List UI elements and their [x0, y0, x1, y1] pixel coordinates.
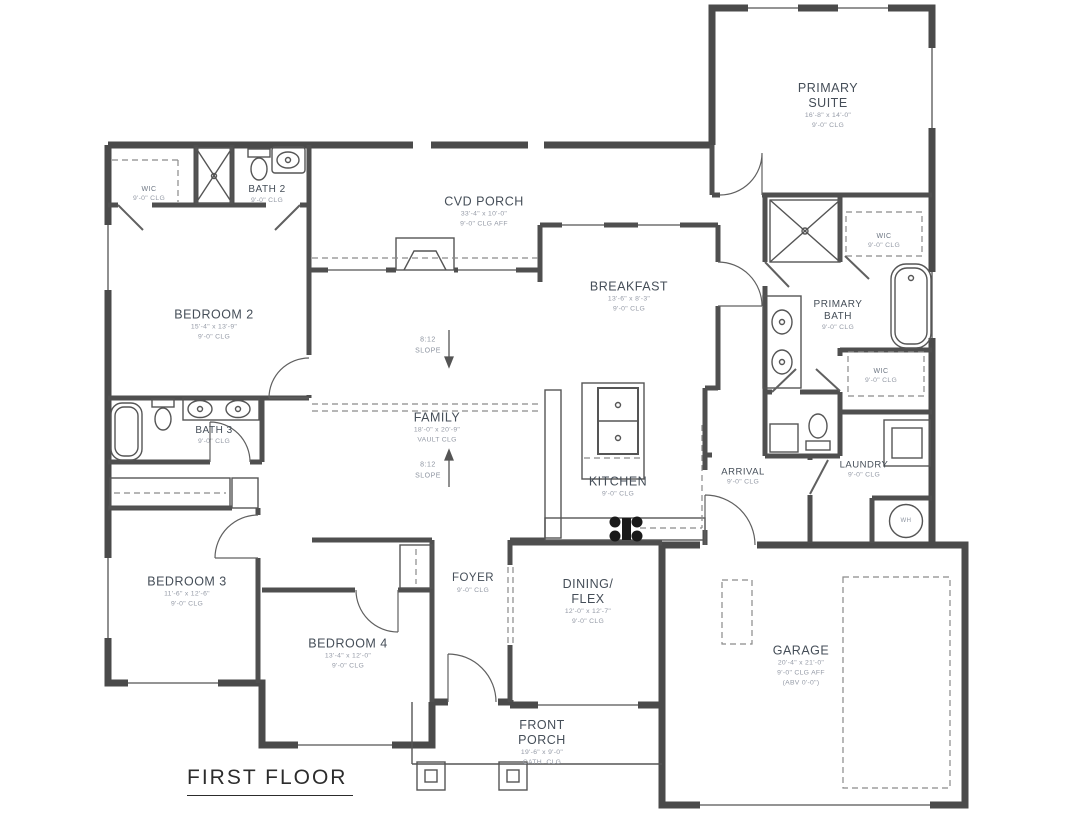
bedroom4-door: [356, 590, 398, 632]
room-label-family: FAMILY 18'-0" x 20'-9" VAULT CLG: [414, 411, 461, 446]
room-name: BEDROOM 4: [308, 637, 388, 652]
room-clg: 9'-0" CLG: [589, 490, 647, 500]
room-label-wic-bedroom2: WIC 9'-0" CLG: [133, 186, 165, 204]
slope-word: SLOPE: [415, 347, 441, 354]
room-name: KITCHEN: [589, 475, 647, 490]
room-clg: 9'-0" CLG AFF: [444, 220, 524, 230]
bath2-door: [275, 205, 300, 230]
tub-primary: [891, 264, 931, 348]
room-name: BREAKFAST: [590, 280, 668, 295]
room-label-bedroom2: BEDROOM 2 15'-4" x 13'-9" 9'-0" CLG: [174, 308, 254, 343]
room-dims: 13'-6" x 8'-3": [590, 295, 668, 305]
room-clg: 9'-0" CLG: [195, 437, 232, 447]
room-label-cvd-porch: CVD PORCH 33'-4" x 10'-0" 9'-0" CLG AFF: [444, 195, 524, 230]
room-clg: VAULT CLG: [414, 436, 461, 446]
dashed-lines: [112, 160, 950, 788]
toilet-primary: [806, 441, 830, 450]
room-clg: CATH. CLG: [507, 758, 577, 768]
room-note: (ABV 0'-0"): [773, 678, 830, 688]
room-name: FOYER: [452, 572, 494, 586]
room-dims: 13'-4" x 12'-0": [308, 652, 388, 662]
room-dims: 19'-6" x 9'-0": [507, 748, 577, 758]
room-name: CVD PORCH: [444, 195, 524, 210]
room-clg: 9'-0" CLG: [174, 333, 254, 343]
wic-primary1-door: [845, 256, 869, 279]
room-clg: 9'-0" CLG: [721, 478, 764, 488]
slope-ratio: 8:12: [420, 462, 436, 469]
room-label-wic-primary-2: WIC 9'-0" CLG: [865, 368, 897, 386]
room-name: BEDROOM 3: [147, 575, 227, 590]
room-dims: 33'-4" x 10'-0": [444, 210, 524, 220]
room-label-bath3: BATH 3 9'-0" CLG: [195, 425, 232, 447]
bedroom2-door: [269, 358, 309, 398]
room-name: WIC: [868, 233, 900, 241]
room-clg: 9'-0" CLG: [308, 662, 388, 672]
room-name: FRONT PORCH: [507, 718, 577, 748]
room-dims: 12'-0" x 12'-7": [556, 607, 620, 617]
room-clg: 9'-0" CLG AFF: [773, 669, 830, 679]
room-clg: 9'-0" CLG: [868, 241, 900, 251]
room-label-wic-primary-1: WIC 9'-0" CLG: [868, 233, 900, 251]
room-dims: 20'-4" x 21'-0": [773, 659, 830, 669]
room-name: PRIMARY SUITE: [786, 81, 870, 111]
water-heater-label: WH: [901, 518, 912, 524]
wic-primary2-door: [816, 369, 840, 391]
door-leaves: [118, 205, 869, 494]
room-clg: 9'-0" CLG: [556, 617, 620, 627]
room-clg: 9'-0" CLG: [133, 194, 165, 204]
primary-shower-door: [765, 262, 789, 287]
slope-ratio: 8:12: [420, 337, 436, 344]
room-label-laundry: LAUNDRY 9'-0" CLG: [840, 459, 889, 480]
sink-primary-1: [772, 310, 792, 334]
room-label-dining: DINING/ FLEX 12'-0" x 12'-7" 9'-0" CLG: [556, 577, 620, 627]
slope-word: SLOPE: [415, 472, 441, 479]
room-clg: 9'-0" CLG: [865, 376, 897, 386]
slope-annotation-lower: 8:12 SLOPE: [415, 461, 441, 482]
room-name: FAMILY: [414, 411, 461, 426]
wic-bedroom2-door: [118, 205, 143, 230]
room-dims: 16'-8" x 14'-0": [786, 111, 870, 121]
room-name: PRIMARY BATH: [803, 299, 873, 323]
doors: [210, 153, 762, 702]
room-label-bedroom4: BEDROOM 4 13'-4" x 12'-0" 9'-0" CLG: [308, 637, 388, 672]
room-dims: 11'-6" x 12'-6": [147, 590, 227, 600]
room-name: BATH 2: [248, 184, 285, 196]
room-label-arrival: ARRIVAL 9'-0" CLG: [721, 466, 764, 487]
room-label-breakfast: BREAKFAST 13'-6" x 8'-3" 9'-0" CLG: [590, 280, 668, 315]
room-label-primary-suite: PRIMARY SUITE 16'-8" x 14'-0" 9'-0" CLG: [786, 81, 870, 131]
room-clg: 9'-0" CLG: [147, 600, 227, 610]
room-label-kitchen: KITCHEN 9'-0" CLG: [589, 475, 647, 500]
room-clg: 9'-0" CLG: [803, 323, 873, 333]
room-label-front-porch: FRONT PORCH 19'-6" x 9'-0" CATH. CLG: [507, 718, 577, 768]
room-clg: 9'-0" CLG: [248, 196, 285, 206]
room-clg: 9'-0" CLG: [840, 471, 889, 481]
floor-plan: PRIMARY SUITE 16'-8" x 14'-0" 9'-0" CLG …: [0, 0, 1072, 828]
room-label-primary-bath: PRIMARY BATH 9'-0" CLG: [803, 299, 873, 333]
room-name: BEDROOM 2: [174, 308, 254, 323]
toilet-bath2: [248, 149, 270, 157]
laundry-door: [810, 460, 828, 494]
room-name: ARRIVAL: [721, 466, 764, 477]
room-dims: 18'-0" x 20'-9": [414, 426, 461, 436]
floorplan-drawing: [0, 0, 1072, 828]
room-dims: 15'-4" x 13'-9": [174, 323, 254, 333]
primary-suite-door: [720, 153, 762, 195]
sink-primary-2: [772, 350, 792, 374]
cooktop: [610, 517, 643, 542]
slope-annotation-upper: 8:12 SLOPE: [415, 336, 441, 357]
plan-title: FIRST FLOOR: [187, 766, 353, 796]
room-clg: 9'-0" CLG: [786, 121, 870, 131]
room-name: GARAGE: [773, 644, 830, 659]
room-clg: 9'-0" CLG: [590, 305, 668, 315]
garage-entry-door: [705, 495, 755, 545]
breakfast-hall-door: [718, 262, 762, 306]
room-name: DINING/ FLEX: [556, 577, 620, 607]
room-label-bath2: BATH 2 9'-0" CLG: [248, 184, 285, 206]
room-name: WIC: [133, 186, 165, 194]
room-name: LAUNDRY: [840, 459, 889, 470]
room-name: BATH 3: [195, 425, 232, 437]
slope-arrows: [445, 330, 453, 487]
room-label-bedroom3: BEDROOM 3 11'-6" x 12'-6" 9'-0" CLG: [147, 575, 227, 610]
room-clg: 9'-0" CLG: [452, 586, 494, 596]
front-door: [448, 654, 496, 702]
room-label-garage: GARAGE 20'-4" x 21'-0" 9'-0" CLG AFF (AB…: [773, 644, 830, 689]
bedroom3-door: [215, 515, 258, 558]
room-label-foyer: FOYER 9'-0" CLG: [452, 572, 494, 596]
room-name: WIC: [865, 368, 897, 376]
